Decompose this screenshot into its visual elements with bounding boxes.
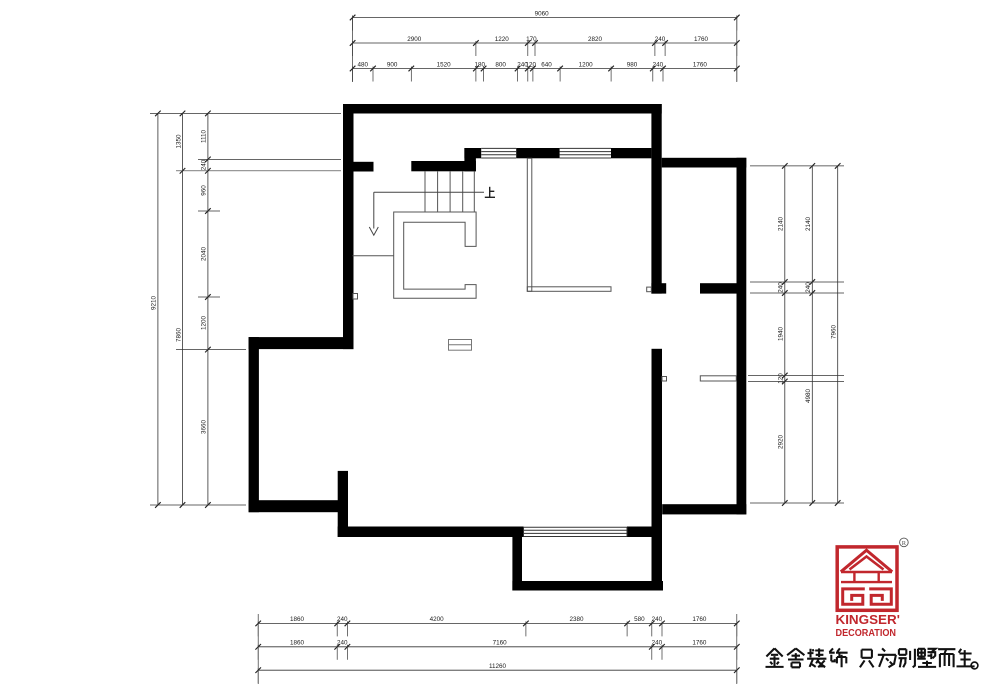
svg-text:580: 580 (634, 616, 645, 623)
svg-text:1760: 1760 (693, 61, 708, 68)
svg-text:2040: 2040 (201, 247, 208, 262)
svg-text:1860: 1860 (290, 640, 305, 647)
svg-text:240: 240 (655, 36, 666, 43)
svg-text:1520: 1520 (437, 61, 452, 68)
svg-text:240: 240 (337, 616, 348, 623)
svg-text:1940: 1940 (778, 327, 785, 342)
svg-text:9060: 9060 (535, 10, 550, 17)
svg-text:1350: 1350 (175, 134, 182, 149)
svg-text:1220: 1220 (495, 36, 510, 43)
svg-text:1760: 1760 (692, 640, 707, 647)
svg-text:9210: 9210 (151, 296, 158, 311)
svg-text:1760: 1760 (694, 36, 709, 43)
svg-text:1200: 1200 (579, 61, 594, 68)
svg-text:240: 240 (778, 282, 785, 293)
svg-text:240: 240 (337, 640, 348, 647)
svg-text:4980: 4980 (805, 389, 812, 404)
svg-text:3660: 3660 (201, 420, 208, 435)
svg-text:240: 240 (652, 616, 663, 623)
svg-text:7860: 7860 (175, 328, 182, 343)
svg-text:980: 980 (627, 61, 638, 68)
svg-text:480: 480 (358, 61, 369, 68)
svg-text:640: 640 (541, 61, 552, 68)
svg-text:240: 240 (805, 282, 812, 293)
svg-text:180: 180 (474, 61, 485, 68)
svg-text:7160: 7160 (493, 640, 508, 647)
svg-text:1200: 1200 (201, 316, 208, 331)
svg-text:800: 800 (495, 61, 506, 68)
svg-text:960: 960 (201, 185, 208, 196)
svg-text:DECORATION: DECORATION (836, 628, 897, 639)
svg-text:900: 900 (387, 61, 398, 68)
svg-text:2140: 2140 (805, 217, 812, 232)
svg-text:11260: 11260 (489, 663, 507, 670)
svg-text:170: 170 (526, 36, 537, 43)
svg-text:120: 120 (526, 61, 537, 68)
svg-text:120: 120 (778, 373, 785, 384)
svg-text:R: R (902, 540, 907, 547)
svg-text:KINGSER': KINGSER' (836, 612, 900, 627)
svg-text:4200: 4200 (430, 616, 445, 623)
svg-text:2920: 2920 (778, 435, 785, 450)
svg-text:1110: 1110 (201, 129, 208, 143)
svg-text:1760: 1760 (692, 616, 707, 623)
svg-text:240: 240 (201, 159, 208, 170)
svg-text:1860: 1860 (290, 616, 305, 623)
svg-text:7960: 7960 (831, 325, 838, 340)
svg-text:2380: 2380 (569, 616, 584, 623)
svg-text:2820: 2820 (588, 36, 603, 43)
svg-text:2140: 2140 (778, 217, 785, 232)
svg-text:2900: 2900 (407, 36, 422, 43)
svg-text:240: 240 (652, 640, 663, 647)
svg-text:240: 240 (653, 61, 664, 68)
